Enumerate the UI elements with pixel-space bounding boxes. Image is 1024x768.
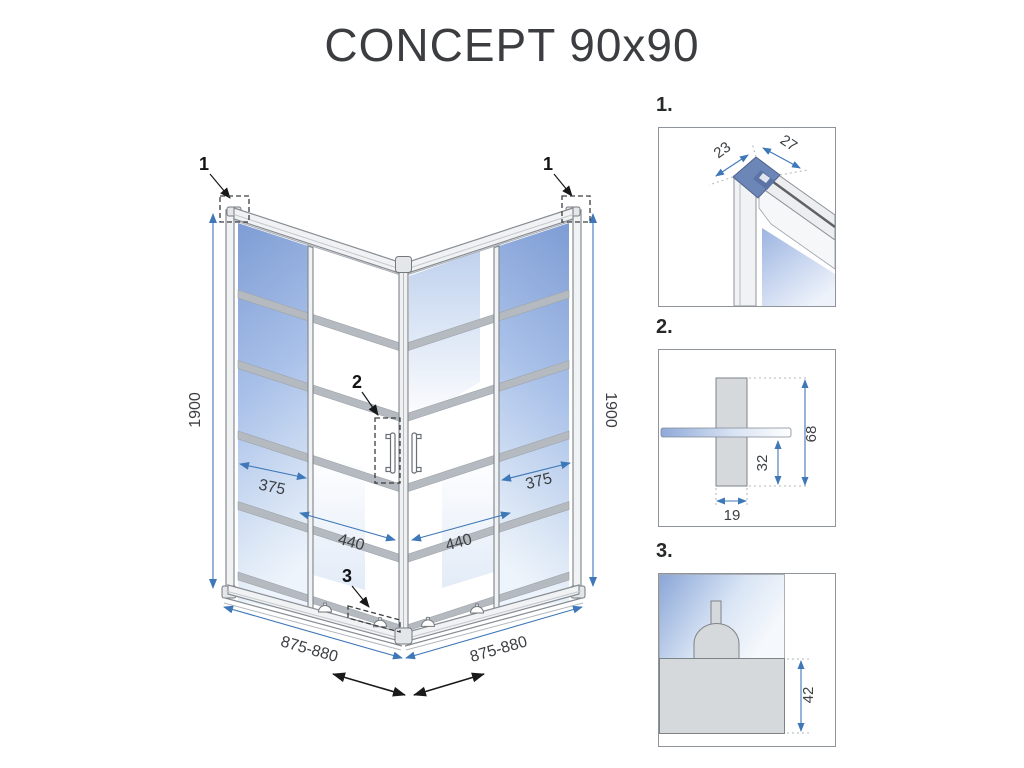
callout-1-left-label: 1 bbox=[199, 154, 209, 174]
dim-width-right-label: 875-880 bbox=[468, 633, 529, 666]
detail-3-drawing: 42 bbox=[659, 574, 835, 746]
panel-edge-profile-left bbox=[308, 246, 313, 616]
dimension-height-left: 1900 bbox=[187, 214, 213, 588]
callout-1-right-label: 1 bbox=[543, 154, 553, 174]
glass-fixed-panel-left bbox=[238, 223, 308, 614]
detail-3-label: 3. bbox=[656, 540, 673, 563]
dimension-42: 42 bbox=[800, 661, 817, 731]
detail-3-box: 42 bbox=[658, 573, 836, 747]
door-handle-left bbox=[386, 433, 395, 473]
glass-panel-section bbox=[661, 428, 791, 437]
dim-32-label: 32 bbox=[754, 455, 771, 472]
glass-fixed-panel-right bbox=[499, 223, 569, 614]
main-drawing: 1900 1900 375 375 440 440 875-880 875-8 bbox=[150, 120, 650, 768]
door-handle-right bbox=[412, 433, 421, 473]
detail-2-box: 68 32 19 bbox=[658, 349, 836, 527]
detail-1-drawing: 23 27 bbox=[659, 128, 835, 306]
detail-1-label: 1. bbox=[656, 94, 673, 117]
dimension-height-right: 1900 bbox=[593, 214, 619, 586]
panel-edge-profile-right bbox=[494, 246, 499, 616]
dimension-19: 19 bbox=[717, 501, 746, 524]
dim-height-left-label: 1900 bbox=[187, 392, 204, 428]
dim-height-right-label: 1900 bbox=[602, 392, 619, 428]
dimension-27: 27 bbox=[763, 132, 800, 168]
slide-direction-arrows bbox=[333, 674, 484, 695]
technical-drawing-page: CONCEPT 90x90 bbox=[0, 0, 1024, 768]
dim-27-label: 27 bbox=[777, 132, 800, 155]
callout-2-label: 2 bbox=[352, 372, 362, 392]
detail-2-label: 2. bbox=[656, 316, 673, 339]
dim-42-label: 42 bbox=[800, 687, 817, 704]
dimension-68: 68 bbox=[803, 380, 820, 485]
page-title: CONCEPT 90x90 bbox=[0, 18, 1024, 72]
dimension-32: 32 bbox=[754, 441, 778, 484]
detail-1-box: 23 27 bbox=[658, 127, 836, 307]
wall-profile bbox=[734, 176, 756, 306]
detail-2-drawing: 68 32 19 bbox=[659, 350, 835, 526]
callout-3-label: 3 bbox=[342, 566, 352, 586]
dim-19-label: 19 bbox=[724, 507, 741, 524]
dim-23-label: 23 bbox=[711, 139, 734, 163]
dim-width-left-label: 875-880 bbox=[279, 633, 340, 666]
dim-68-label: 68 bbox=[803, 426, 820, 443]
bottom-rail-section bbox=[660, 659, 785, 734]
